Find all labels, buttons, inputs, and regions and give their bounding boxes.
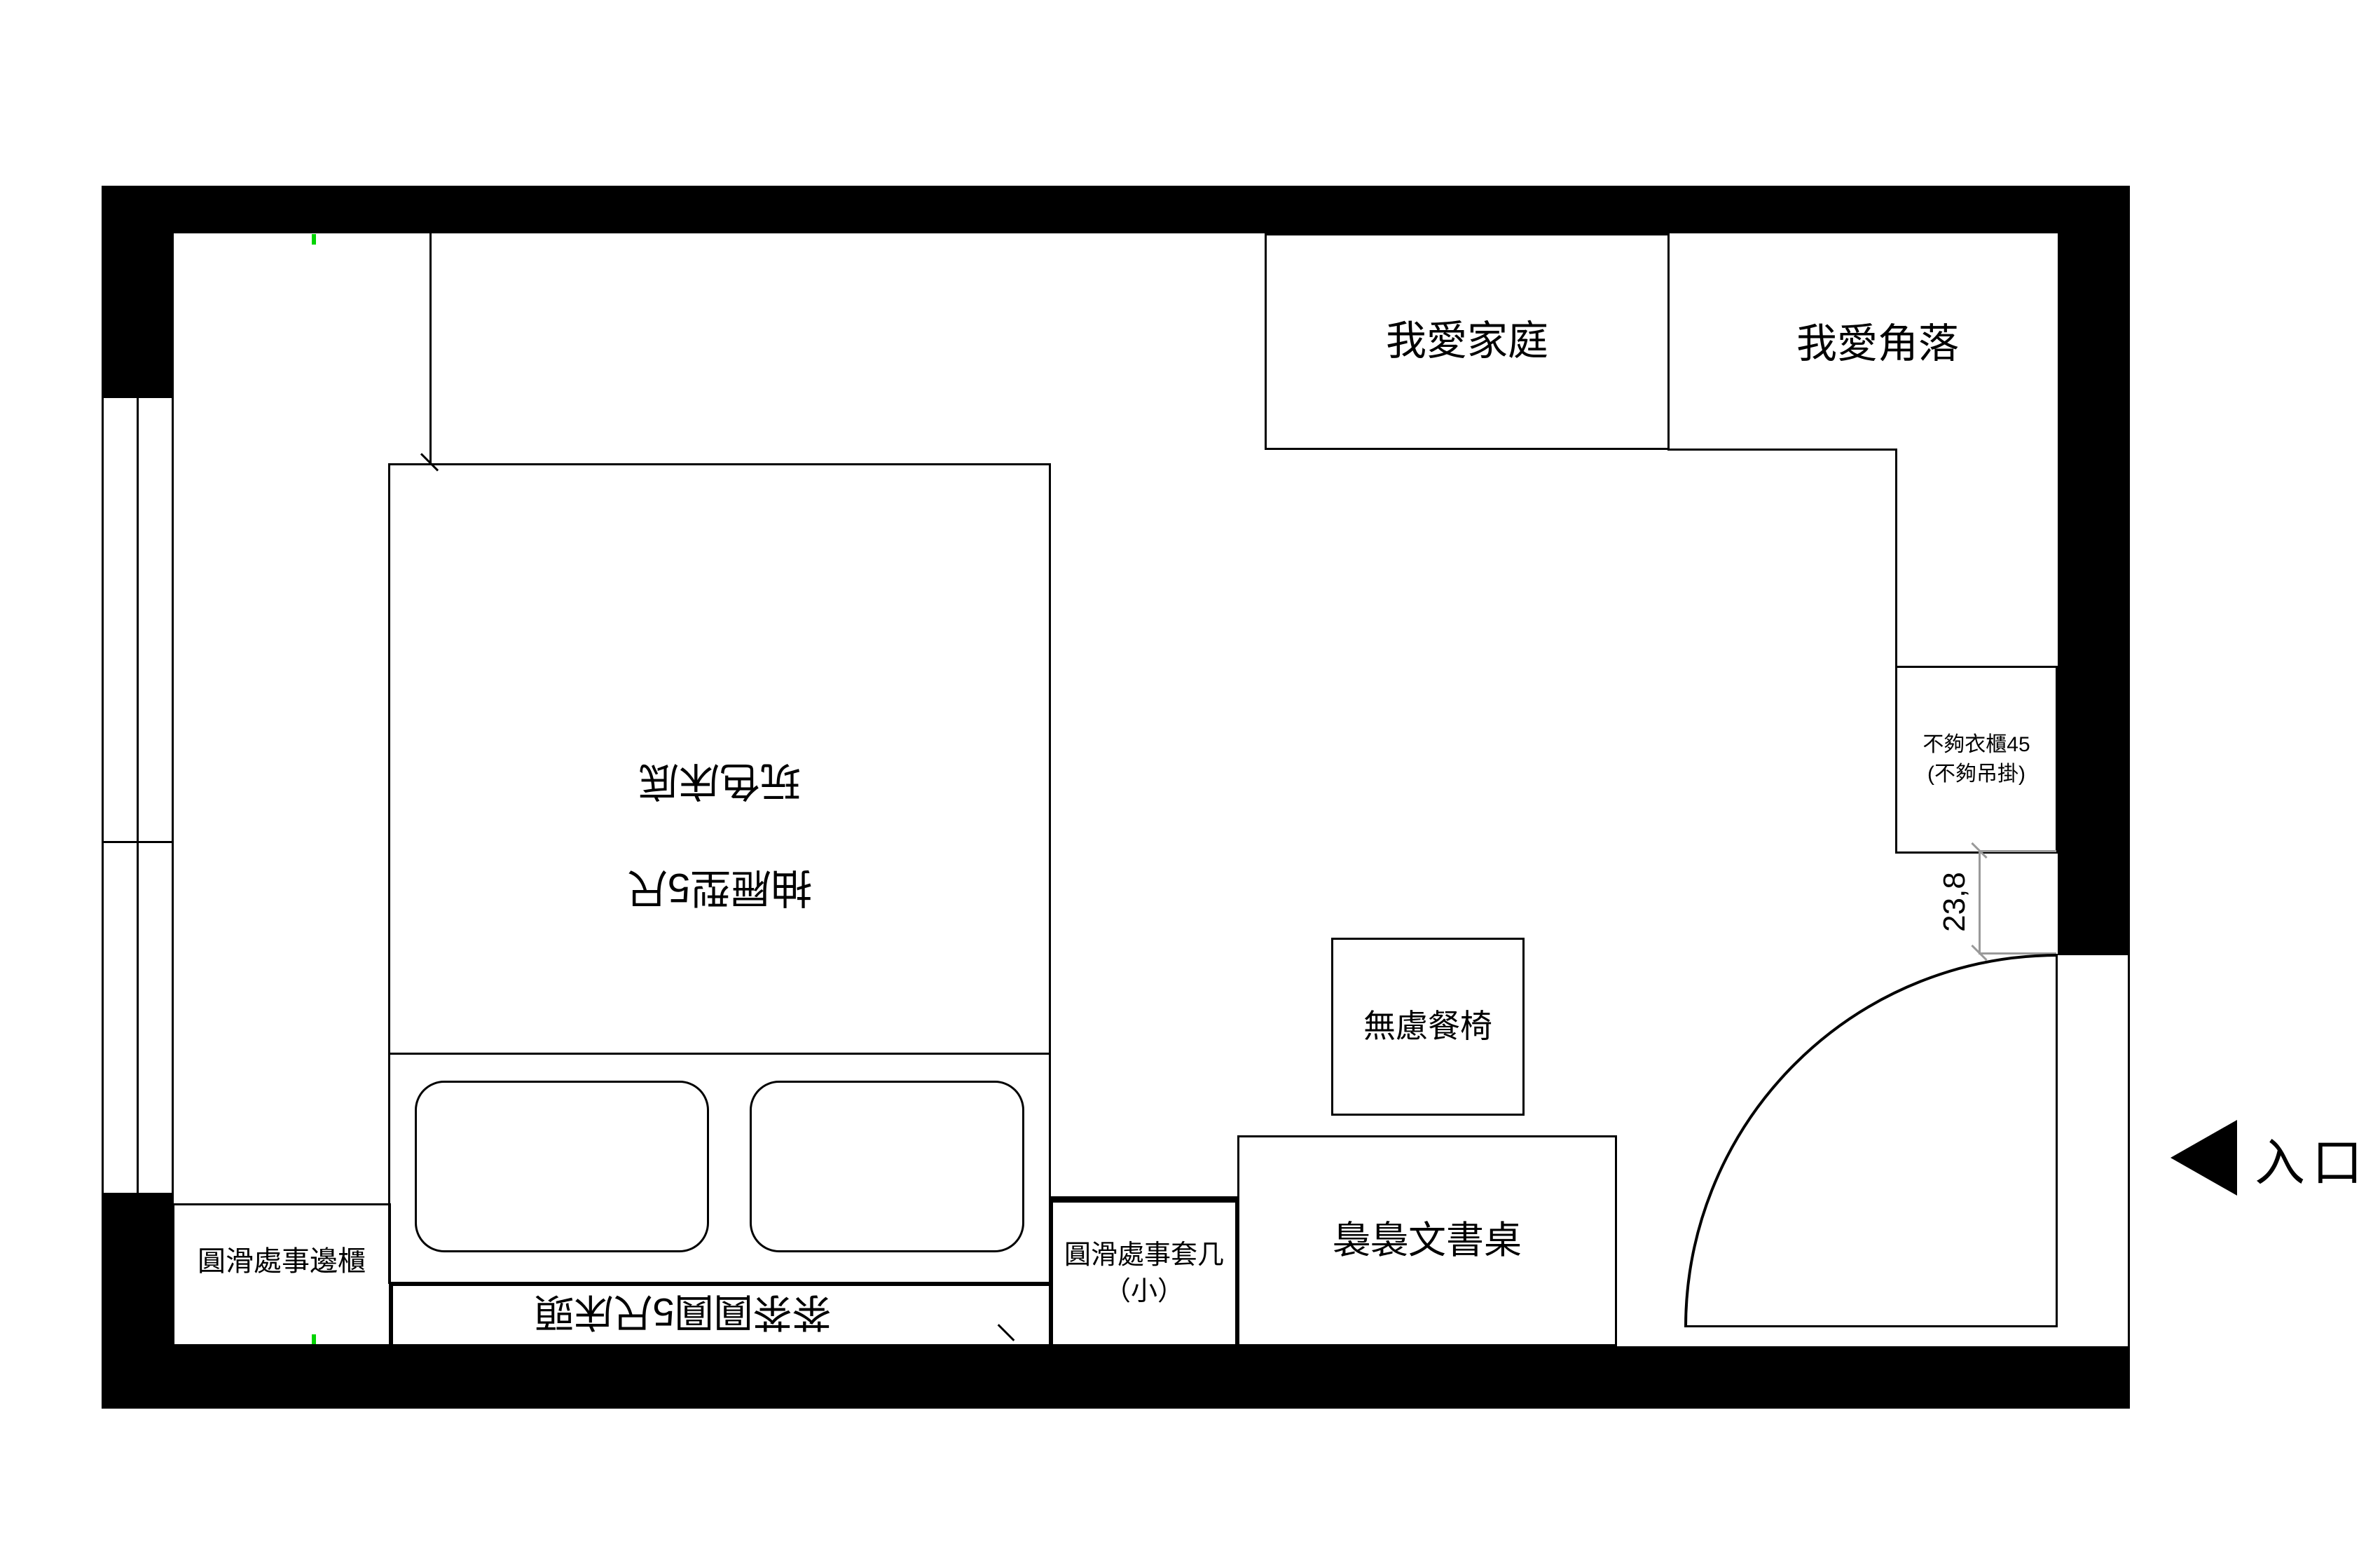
bed-label-line2: 玩色床底 [638, 727, 801, 834]
corner-cabinet-edge-v1 [1895, 449, 1897, 668]
door-swing-arc [1663, 933, 2084, 1354]
floor-plan-canvas: { "plan": { "labels": { "family_cabinet"… [0, 0, 2380, 1553]
desk[interactable]: 裊裊文書桌 [1237, 1135, 1617, 1346]
side-table-label-line1: 圓滑處事套几 [1064, 1237, 1224, 1273]
chair-label: 無慮餐椅 [1363, 1006, 1492, 1047]
wall-right [2058, 186, 2130, 955]
entrance-arrow-icon [2171, 1120, 2237, 1196]
cabinet-family[interactable]: 我愛家庭 [1265, 233, 1670, 450]
side-cabinet-label: 圓滑處事邊櫃 [198, 1244, 366, 1279]
cabinet-wardrobe-label-line1: 不夠衣櫃45 [1922, 730, 2030, 760]
cabinet-wardrobe-label-line2: (不夠吊掛) [1927, 760, 2025, 789]
cabinet-family-label: 我愛家庭 [1386, 316, 1548, 367]
marker-tick-top [312, 234, 316, 245]
corner-cabinet-edge-h1 [1667, 449, 1897, 451]
side-cabinet[interactable]: 圓滑處事邊櫃 [172, 1203, 391, 1346]
side-table-label-line2: （小） [1104, 1273, 1184, 1310]
bed-label-line1: 抽屜型5尺 [627, 834, 812, 940]
window-divider-line [104, 841, 172, 843]
entrance-label: 入口 [2245, 1120, 2379, 1196]
headboard-label: 茶茶圓圓5尺床頭 [322, 1288, 1044, 1343]
bed-foot-line [388, 1053, 1051, 1055]
bed-label: 抽屜型5尺 玩色床底 [388, 722, 1051, 946]
wall-top [102, 186, 2130, 233]
bed-drawer-left[interactable] [415, 1081, 709, 1252]
wall-outer-face-line [2128, 955, 2130, 1346]
chair[interactable]: 無慮餐椅 [1331, 938, 1525, 1116]
window-mullion-line [137, 398, 139, 1193]
cabinet-wardrobe[interactable]: 不夠衣櫃45 (不夠吊掛) [1895, 666, 2058, 854]
bed-drawer-right[interactable] [750, 1081, 1024, 1252]
leader-line [429, 233, 432, 463]
dimension-ext-top [1979, 850, 2056, 852]
wall-left-upper [102, 186, 174, 397]
desk-label: 裊裊文書桌 [1333, 1217, 1522, 1265]
window [102, 396, 174, 1195]
wall-bottom [102, 1346, 2130, 1409]
side-table[interactable]: 圓滑處事套几 （小） [1051, 1196, 1237, 1346]
cabinet-corner-label: 我愛角落 [1695, 249, 2060, 431]
